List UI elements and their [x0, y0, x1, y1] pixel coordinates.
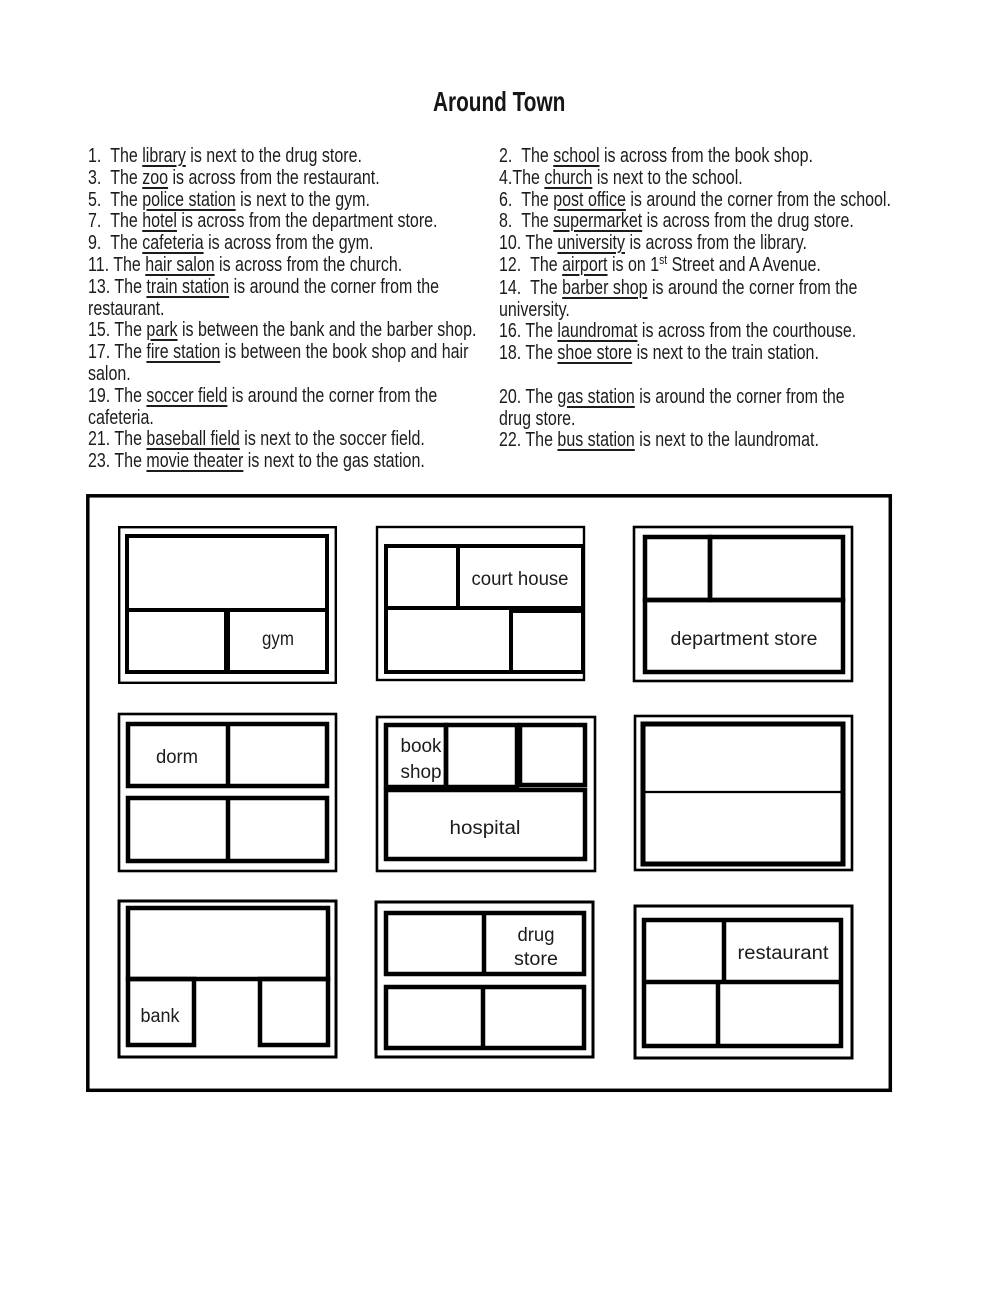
svg-text:store: store [514, 949, 558, 970]
svg-text:court house: court house [472, 569, 569, 590]
svg-text:shop: shop [401, 762, 442, 783]
svg-text:drug: drug [518, 925, 555, 946]
svg-text:restaurant: restaurant [738, 943, 830, 964]
svg-text:department store: department store [671, 629, 818, 650]
svg-text:hospital: hospital [450, 818, 521, 839]
svg-text:bank: bank [141, 1006, 180, 1027]
svg-text:book: book [401, 736, 442, 757]
svg-text:gym: gym [262, 629, 294, 650]
svg-text:dorm: dorm [156, 747, 198, 768]
